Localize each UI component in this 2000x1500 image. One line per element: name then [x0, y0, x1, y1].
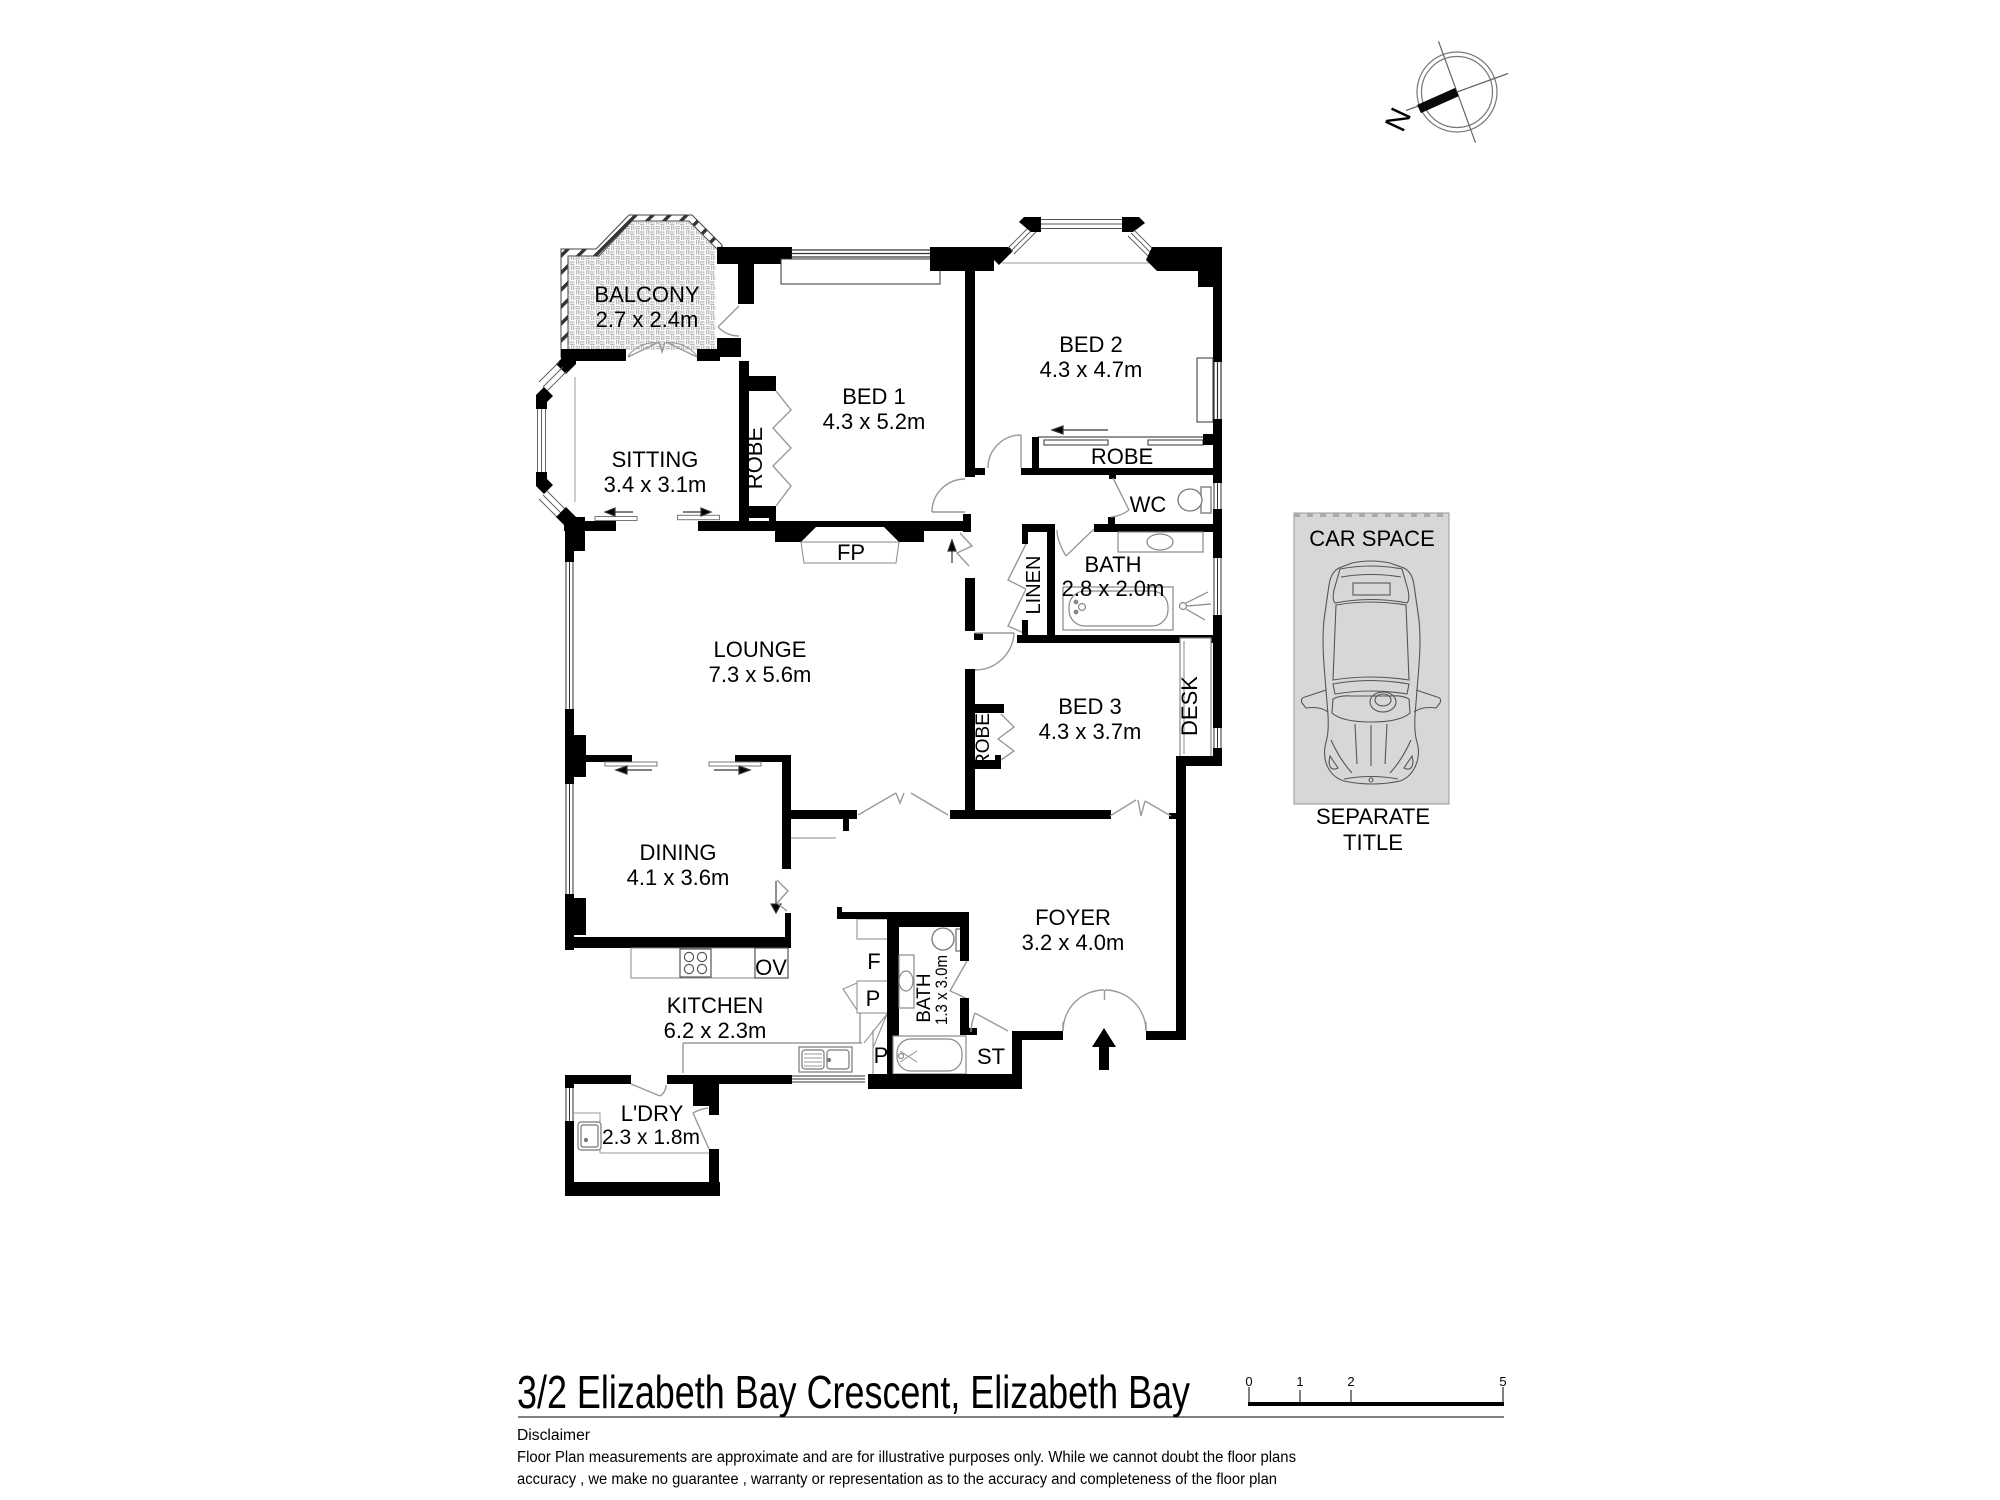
svg-text:CAR SPACE: CAR SPACE	[1309, 526, 1435, 551]
svg-text:7.3 x 5.6m: 7.3 x 5.6m	[709, 662, 812, 687]
svg-text:TITLE: TITLE	[1343, 830, 1403, 855]
svg-text:DINING: DINING	[640, 840, 717, 865]
svg-text:5: 5	[1499, 1374, 1506, 1389]
svg-text:L'DRY: L'DRY	[621, 1101, 684, 1126]
svg-text:SEPARATE: SEPARATE	[1316, 804, 1430, 829]
svg-text:0: 0	[1245, 1374, 1252, 1389]
svg-text:FP: FP	[837, 540, 865, 565]
svg-text:BALCONY: BALCONY	[594, 282, 699, 307]
svg-text:ROBE: ROBE	[973, 713, 994, 767]
svg-text:BATH: BATH	[1084, 552, 1141, 577]
svg-text:1.3 x 3.0m: 1.3 x 3.0m	[932, 955, 951, 1025]
svg-text:LOUNGE: LOUNGE	[714, 637, 807, 662]
svg-text:4.1 x 3.6m: 4.1 x 3.6m	[627, 865, 730, 890]
svg-text:3.2 x 4.0m: 3.2 x 4.0m	[1022, 930, 1125, 955]
svg-text:6.2 x 2.3m: 6.2 x 2.3m	[664, 1018, 767, 1043]
svg-text:2.8 x 2.0m: 2.8 x 2.0m	[1062, 576, 1165, 601]
svg-text:Floor Plan measurements are ap: Floor Plan measurements are approximate …	[517, 1449, 1296, 1466]
svg-text:WC: WC	[1130, 492, 1167, 517]
svg-text:4.3 x 3.7m: 4.3 x 3.7m	[1039, 719, 1142, 744]
svg-text:2: 2	[1347, 1374, 1354, 1389]
svg-text:LINEN: LINEN	[1023, 556, 1045, 615]
svg-text:ROBE: ROBE	[1091, 444, 1153, 469]
svg-text:SITTING: SITTING	[612, 447, 699, 472]
svg-text:KITCHEN: KITCHEN	[667, 993, 764, 1018]
svg-text:1: 1	[1296, 1374, 1303, 1389]
svg-text:3.4 x 3.1m: 3.4 x 3.1m	[604, 472, 707, 497]
svg-text:4.3 x 4.7m: 4.3 x 4.7m	[1040, 357, 1143, 382]
svg-text:accuracy , we make no guarante: accuracy , we make no guarantee , warran…	[517, 1471, 1277, 1488]
svg-text:OV: OV	[755, 955, 787, 980]
svg-text:BED 1: BED 1	[842, 384, 906, 409]
svg-text:P: P	[866, 986, 881, 1011]
svg-text:4.3 x 5.2m: 4.3 x 5.2m	[823, 409, 926, 434]
svg-text:F: F	[867, 949, 880, 974]
svg-text:BED 3: BED 3	[1058, 694, 1122, 719]
svg-text:ROBE: ROBE	[742, 427, 767, 489]
svg-text:ST: ST	[977, 1044, 1005, 1069]
svg-text:2.3 x 1.8m: 2.3 x 1.8m	[602, 1126, 700, 1149]
svg-text:FOYER: FOYER	[1035, 905, 1111, 930]
svg-text:BED 2: BED 2	[1059, 332, 1123, 357]
svg-text:Disclaimer: Disclaimer	[517, 1427, 590, 1444]
svg-text:P: P	[874, 1043, 889, 1068]
svg-text:2.7 x 2.4m: 2.7 x 2.4m	[596, 307, 699, 332]
svg-text:3/2 Elizabeth Bay Crescent, El: 3/2 Elizabeth Bay Crescent, Elizabeth Ba…	[517, 1366, 1190, 1418]
svg-text:DESK: DESK	[1177, 676, 1202, 736]
